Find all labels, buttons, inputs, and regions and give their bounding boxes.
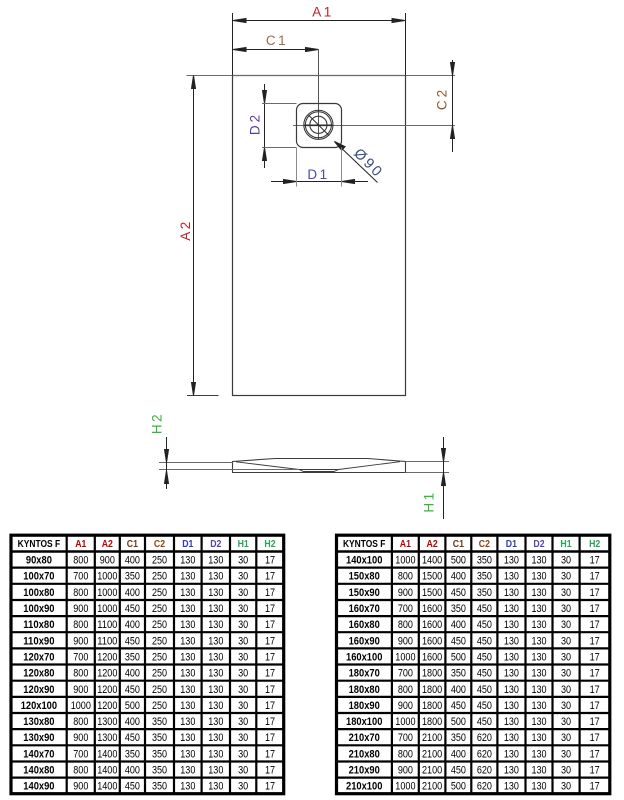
svg-text:130: 130 [531, 571, 546, 583]
svg-text:17: 17 [590, 652, 600, 664]
svg-text:800: 800 [73, 716, 88, 728]
svg-text:400: 400 [125, 668, 140, 680]
svg-text:620: 620 [477, 748, 492, 760]
svg-text:17: 17 [265, 571, 275, 583]
svg-text:900: 900 [73, 732, 88, 744]
svg-text:30: 30 [238, 603, 248, 615]
svg-text:130: 130 [180, 732, 195, 744]
svg-text:A2: A2 [102, 539, 114, 550]
svg-text:C1: C1 [127, 539, 139, 550]
svg-text:450: 450 [477, 700, 492, 712]
svg-text:30: 30 [238, 668, 248, 680]
svg-text:130: 130 [531, 587, 546, 599]
svg-text:130: 130 [504, 716, 519, 728]
svg-text:130: 130 [531, 668, 546, 680]
svg-text:500: 500 [125, 700, 140, 712]
svg-text:H2: H2 [264, 539, 276, 550]
svg-text:17: 17 [590, 684, 600, 696]
svg-text:350: 350 [451, 732, 466, 744]
svg-text:350: 350 [152, 781, 167, 793]
svg-text:130: 130 [208, 748, 223, 760]
svg-text:130: 130 [531, 781, 546, 793]
svg-text:210x80: 210x80 [349, 748, 380, 760]
svg-text:1400: 1400 [97, 781, 117, 793]
svg-text:250: 250 [152, 587, 167, 599]
svg-text:30: 30 [561, 619, 571, 631]
svg-text:17: 17 [590, 700, 600, 712]
svg-text:400: 400 [451, 571, 466, 583]
svg-text:1000: 1000 [97, 603, 117, 615]
svg-text:700: 700 [398, 732, 413, 744]
svg-text:30: 30 [238, 619, 248, 631]
svg-text:130: 130 [531, 748, 546, 760]
svg-text:250: 250 [152, 619, 167, 631]
svg-text:900: 900 [398, 587, 413, 599]
svg-text:140x100: 140x100 [346, 555, 382, 567]
svg-text:C2: C2 [154, 539, 166, 550]
svg-text:30: 30 [238, 571, 248, 583]
svg-text:800: 800 [398, 619, 413, 631]
svg-text:130: 130 [180, 668, 195, 680]
svg-text:130: 130 [208, 619, 223, 631]
svg-text:130: 130 [504, 765, 519, 777]
svg-text:250: 250 [152, 700, 167, 712]
svg-text:1800: 1800 [422, 668, 442, 680]
svg-text:250: 250 [152, 571, 167, 583]
svg-text:210x100: 210x100 [346, 781, 382, 793]
svg-text:130: 130 [504, 603, 519, 615]
svg-text:180x90: 180x90 [349, 700, 380, 712]
svg-text:1200: 1200 [97, 668, 117, 680]
svg-text:A2: A2 [178, 219, 193, 241]
svg-text:30: 30 [561, 684, 571, 696]
svg-text:500: 500 [451, 652, 466, 664]
svg-text:160x70: 160x70 [349, 603, 380, 615]
svg-text:17: 17 [590, 732, 600, 744]
svg-text:2100: 2100 [422, 748, 442, 760]
svg-text:30: 30 [561, 587, 571, 599]
svg-text:900: 900 [398, 635, 413, 647]
svg-text:450: 450 [451, 700, 466, 712]
svg-text:1400: 1400 [422, 555, 442, 567]
svg-text:D2: D2 [248, 112, 263, 135]
svg-text:30: 30 [238, 684, 248, 696]
svg-text:1300: 1300 [97, 716, 117, 728]
svg-text:130: 130 [504, 668, 519, 680]
svg-text:1000: 1000 [395, 555, 415, 567]
svg-text:350: 350 [152, 748, 167, 760]
svg-text:130: 130 [504, 555, 519, 567]
svg-text:450: 450 [125, 781, 140, 793]
svg-text:1000: 1000 [395, 781, 415, 793]
svg-text:130: 130 [504, 732, 519, 744]
svg-text:450: 450 [477, 652, 492, 664]
svg-text:D1: D1 [307, 167, 329, 182]
svg-text:17: 17 [590, 555, 600, 567]
svg-text:130: 130 [180, 684, 195, 696]
svg-text:180x80: 180x80 [349, 684, 380, 696]
svg-text:H1: H1 [560, 539, 572, 550]
svg-text:250: 250 [152, 684, 167, 696]
svg-text:17: 17 [265, 684, 275, 696]
svg-text:D1: D1 [182, 539, 194, 550]
svg-text:17: 17 [590, 748, 600, 760]
svg-text:30: 30 [561, 781, 571, 793]
svg-text:1000: 1000 [97, 587, 117, 599]
svg-text:17: 17 [590, 603, 600, 615]
svg-text:H1: H1 [422, 490, 437, 512]
svg-text:130: 130 [180, 716, 195, 728]
svg-text:900: 900 [398, 765, 413, 777]
svg-text:1400: 1400 [97, 765, 117, 777]
svg-text:450: 450 [477, 716, 492, 728]
svg-text:700: 700 [73, 748, 88, 760]
svg-text:1100: 1100 [97, 619, 117, 631]
svg-text:30: 30 [561, 603, 571, 615]
svg-text:17: 17 [590, 765, 600, 777]
svg-text:350: 350 [152, 716, 167, 728]
svg-text:400: 400 [125, 716, 140, 728]
svg-text:400: 400 [451, 619, 466, 631]
svg-text:130: 130 [208, 571, 223, 583]
svg-text:D1: D1 [506, 539, 518, 550]
svg-text:130: 130 [531, 716, 546, 728]
svg-text:130: 130 [180, 635, 195, 647]
svg-text:450: 450 [125, 635, 140, 647]
svg-text:250: 250 [152, 652, 167, 664]
svg-text:700: 700 [73, 571, 88, 583]
svg-text:120x100: 120x100 [21, 700, 57, 712]
svg-text:30: 30 [561, 668, 571, 680]
svg-text:700: 700 [398, 603, 413, 615]
svg-text:140x90: 140x90 [23, 781, 54, 793]
svg-text:130: 130 [531, 635, 546, 647]
svg-text:110x90: 110x90 [23, 635, 54, 647]
svg-text:30: 30 [238, 748, 248, 760]
svg-text:2100: 2100 [422, 732, 442, 744]
svg-text:30: 30 [561, 571, 571, 583]
svg-text:160x100: 160x100 [346, 652, 382, 664]
svg-text:130: 130 [180, 571, 195, 583]
svg-text:130: 130 [180, 765, 195, 777]
svg-text:130: 130 [504, 781, 519, 793]
svg-text:900: 900 [398, 700, 413, 712]
svg-text:130: 130 [208, 684, 223, 696]
svg-text:150x90: 150x90 [349, 587, 380, 599]
svg-text:17: 17 [265, 555, 275, 567]
svg-text:130: 130 [531, 765, 546, 777]
svg-text:30: 30 [561, 716, 571, 728]
svg-text:450: 450 [477, 603, 492, 615]
svg-text:30: 30 [561, 652, 571, 664]
svg-text:KYNTOS F: KYNTOS F [343, 539, 386, 550]
svg-text:C1: C1 [453, 539, 465, 550]
svg-text:30: 30 [238, 781, 248, 793]
svg-text:130: 130 [208, 700, 223, 712]
svg-text:130: 130 [180, 652, 195, 664]
svg-text:450: 450 [477, 635, 492, 647]
svg-text:110x80: 110x80 [23, 619, 54, 631]
svg-text:900: 900 [100, 555, 115, 567]
svg-text:H1: H1 [238, 539, 250, 550]
svg-text:800: 800 [73, 765, 88, 777]
svg-text:130: 130 [531, 732, 546, 744]
svg-text:130: 130 [180, 555, 195, 567]
svg-text:A1: A1 [75, 539, 87, 550]
svg-text:D2: D2 [210, 539, 222, 550]
svg-text:800: 800 [73, 619, 88, 631]
svg-text:30: 30 [238, 635, 248, 647]
svg-text:620: 620 [477, 732, 492, 744]
svg-text:350: 350 [125, 571, 140, 583]
svg-text:1600: 1600 [422, 603, 442, 615]
svg-text:130: 130 [180, 587, 195, 599]
svg-text:130: 130 [180, 619, 195, 631]
svg-text:250: 250 [152, 603, 167, 615]
svg-text:180x100: 180x100 [346, 716, 382, 728]
svg-text:400: 400 [125, 587, 140, 599]
svg-text:130: 130 [504, 587, 519, 599]
svg-text:210x70: 210x70 [349, 732, 380, 744]
svg-text:1000: 1000 [97, 571, 117, 583]
svg-text:1600: 1600 [422, 652, 442, 664]
svg-text:130: 130 [531, 619, 546, 631]
svg-text:17: 17 [265, 700, 275, 712]
svg-text:17: 17 [265, 619, 275, 631]
svg-text:130: 130 [504, 652, 519, 664]
svg-text:100x90: 100x90 [23, 603, 54, 615]
svg-text:130: 130 [504, 748, 519, 760]
svg-text:30: 30 [561, 732, 571, 744]
svg-text:800: 800 [73, 555, 88, 567]
svg-text:210x90: 210x90 [349, 765, 380, 777]
svg-text:17: 17 [265, 732, 275, 744]
svg-text:800: 800 [73, 587, 88, 599]
svg-text:H2: H2 [150, 412, 165, 434]
svg-text:D2: D2 [533, 539, 545, 550]
svg-text:17: 17 [590, 635, 600, 647]
svg-text:350: 350 [451, 668, 466, 680]
svg-text:130: 130 [208, 781, 223, 793]
svg-text:1600: 1600 [422, 619, 442, 631]
svg-text:350: 350 [451, 603, 466, 615]
svg-text:160x90: 160x90 [349, 635, 380, 647]
svg-text:450: 450 [451, 587, 466, 599]
svg-text:450: 450 [477, 684, 492, 696]
svg-text:130: 130 [531, 555, 546, 567]
svg-text:130: 130 [504, 635, 519, 647]
svg-text:2100: 2100 [422, 781, 442, 793]
svg-text:C2: C2 [479, 539, 491, 550]
svg-text:A1: A1 [312, 5, 334, 20]
svg-text:1000: 1000 [395, 652, 415, 664]
svg-text:350: 350 [125, 652, 140, 664]
svg-text:130: 130 [208, 652, 223, 664]
svg-text:140x70: 140x70 [23, 748, 54, 760]
svg-text:900: 900 [73, 781, 88, 793]
svg-text:130: 130 [531, 603, 546, 615]
svg-text:100x80: 100x80 [23, 587, 54, 599]
svg-text:1500: 1500 [422, 571, 442, 583]
svg-text:350: 350 [152, 732, 167, 744]
svg-text:160x80: 160x80 [349, 619, 380, 631]
svg-text:250: 250 [152, 668, 167, 680]
svg-text:30: 30 [561, 748, 571, 760]
svg-text:30: 30 [238, 587, 248, 599]
svg-text:30: 30 [238, 716, 248, 728]
svg-text:30: 30 [561, 700, 571, 712]
svg-text:130: 130 [531, 700, 546, 712]
svg-text:130: 130 [531, 652, 546, 664]
svg-text:17: 17 [265, 652, 275, 664]
svg-text:30: 30 [238, 652, 248, 664]
svg-text:350: 350 [125, 748, 140, 760]
svg-text:30: 30 [561, 765, 571, 777]
svg-text:1200: 1200 [97, 684, 117, 696]
svg-text:17: 17 [265, 716, 275, 728]
svg-text:800: 800 [73, 668, 88, 680]
svg-text:400: 400 [451, 684, 466, 696]
svg-text:450: 450 [125, 732, 140, 744]
svg-text:450: 450 [125, 684, 140, 696]
svg-text:450: 450 [451, 765, 466, 777]
svg-text:100x70: 100x70 [23, 571, 54, 583]
svg-text:1000: 1000 [71, 700, 91, 712]
svg-text:120x70: 120x70 [23, 652, 54, 664]
svg-text:30: 30 [561, 635, 571, 647]
svg-text:130: 130 [208, 555, 223, 567]
svg-text:130: 130 [180, 748, 195, 760]
svg-text:130: 130 [208, 668, 223, 680]
svg-text:130: 130 [504, 571, 519, 583]
svg-text:130: 130 [208, 732, 223, 744]
svg-text:150x80: 150x80 [349, 571, 380, 583]
svg-text:400: 400 [125, 619, 140, 631]
svg-text:17: 17 [590, 668, 600, 680]
svg-text:1800: 1800 [422, 716, 442, 728]
svg-text:130x80: 130x80 [23, 716, 54, 728]
svg-text:17: 17 [590, 587, 600, 599]
svg-text:500: 500 [451, 716, 466, 728]
svg-text:17: 17 [265, 635, 275, 647]
svg-text:1500: 1500 [422, 587, 442, 599]
svg-text:450: 450 [125, 603, 140, 615]
svg-text:C1: C1 [266, 33, 288, 48]
svg-text:1400: 1400 [97, 748, 117, 760]
svg-text:17: 17 [590, 716, 600, 728]
svg-text:350: 350 [477, 555, 492, 567]
svg-text:800: 800 [398, 684, 413, 696]
svg-text:17: 17 [265, 748, 275, 760]
svg-text:17: 17 [590, 571, 600, 583]
svg-text:130: 130 [208, 716, 223, 728]
svg-text:A2: A2 [427, 539, 439, 550]
svg-text:350: 350 [477, 571, 492, 583]
svg-text:500: 500 [451, 781, 466, 793]
svg-text:130x90: 130x90 [23, 732, 54, 744]
svg-text:130: 130 [504, 684, 519, 696]
svg-text:130: 130 [208, 635, 223, 647]
svg-text:900: 900 [73, 684, 88, 696]
svg-text:130: 130 [180, 603, 195, 615]
svg-text:130: 130 [504, 700, 519, 712]
svg-text:250: 250 [152, 555, 167, 567]
svg-text:1800: 1800 [422, 684, 442, 696]
svg-text:450: 450 [477, 668, 492, 680]
svg-text:130: 130 [180, 781, 195, 793]
svg-text:1800: 1800 [422, 700, 442, 712]
svg-text:17: 17 [265, 587, 275, 599]
svg-text:17: 17 [265, 668, 275, 680]
svg-text:30: 30 [561, 555, 571, 567]
svg-text:17: 17 [590, 619, 600, 631]
svg-text:H2: H2 [589, 539, 601, 550]
svg-text:1000: 1000 [395, 716, 415, 728]
svg-text:30: 30 [238, 700, 248, 712]
svg-text:450: 450 [477, 619, 492, 631]
svg-text:1200: 1200 [97, 700, 117, 712]
svg-text:2100: 2100 [422, 765, 442, 777]
svg-text:130: 130 [180, 700, 195, 712]
svg-text:17: 17 [265, 781, 275, 793]
svg-text:620: 620 [477, 781, 492, 793]
svg-text:1600: 1600 [422, 635, 442, 647]
svg-text:130: 130 [208, 603, 223, 615]
svg-text:350: 350 [477, 587, 492, 599]
svg-text:800: 800 [398, 748, 413, 760]
svg-text:450: 450 [451, 635, 466, 647]
svg-text:700: 700 [73, 652, 88, 664]
svg-text:130: 130 [208, 765, 223, 777]
svg-text:400: 400 [125, 555, 140, 567]
svg-text:500: 500 [451, 555, 466, 567]
svg-text:900: 900 [73, 635, 88, 647]
svg-text:120x90: 120x90 [23, 684, 54, 696]
svg-text:130: 130 [504, 619, 519, 631]
svg-text:A1: A1 [400, 539, 412, 550]
svg-text:620: 620 [477, 765, 492, 777]
svg-text:120x80: 120x80 [23, 668, 54, 680]
svg-text:900: 900 [73, 603, 88, 615]
svg-text:250: 250 [152, 635, 167, 647]
svg-text:350: 350 [152, 765, 167, 777]
svg-text:90x80: 90x80 [26, 555, 52, 567]
svg-text:130: 130 [531, 684, 546, 696]
svg-text:130: 130 [208, 587, 223, 599]
svg-text:800: 800 [398, 571, 413, 583]
svg-text:30: 30 [238, 765, 248, 777]
svg-text:17: 17 [265, 603, 275, 615]
svg-text:Ø90: Ø90 [350, 146, 386, 182]
svg-text:400: 400 [451, 748, 466, 760]
svg-text:C2: C2 [435, 87, 450, 110]
svg-text:1100: 1100 [97, 635, 117, 647]
svg-text:KYNTOS F: KYNTOS F [18, 539, 61, 550]
svg-text:400: 400 [125, 765, 140, 777]
svg-text:30: 30 [238, 555, 248, 567]
svg-text:180x70: 180x70 [349, 668, 380, 680]
svg-text:140x80: 140x80 [23, 765, 54, 777]
svg-text:17: 17 [265, 765, 275, 777]
svg-text:1200: 1200 [97, 652, 117, 664]
svg-text:17: 17 [590, 781, 600, 793]
svg-text:1300: 1300 [97, 732, 117, 744]
svg-text:30: 30 [238, 732, 248, 744]
svg-text:700: 700 [398, 668, 413, 680]
